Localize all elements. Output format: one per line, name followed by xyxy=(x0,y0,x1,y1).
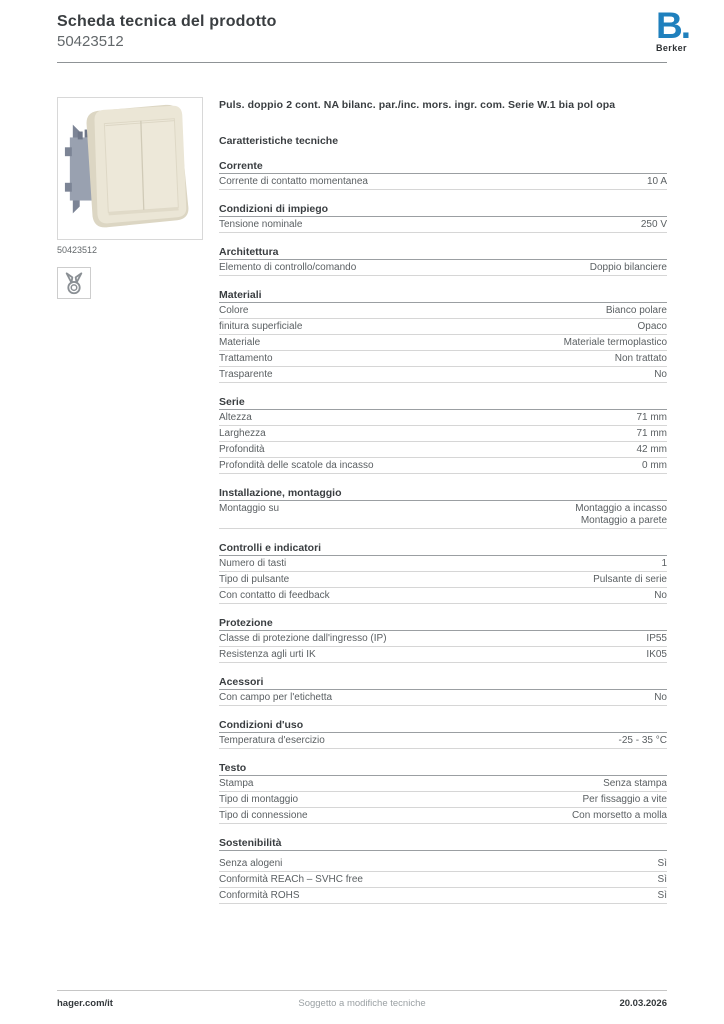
spec-label: Resistenza agli urti IK xyxy=(219,649,316,661)
spec-label: Temperatura d'esercizio xyxy=(219,735,325,747)
spec-value: Non trattato xyxy=(603,353,667,365)
spec-row: Materiale Materiale termoplastico xyxy=(219,335,667,351)
spec-label: Tipo di montaggio xyxy=(219,794,298,806)
spec-row: Tipo di pulsante Pulsante di serie xyxy=(219,572,667,588)
spec-label: Montaggio su xyxy=(219,503,279,515)
header-titles: Scheda tecnica del prodotto 50423512 xyxy=(57,13,277,50)
spec-row: Stampa Senza stampa xyxy=(219,776,667,792)
spec-row: Profondità delle scatole da incasso 0 mm xyxy=(219,458,667,474)
spec-label: Corrente di contatto momentanea xyxy=(219,176,368,188)
spec-value: 10 A xyxy=(635,176,667,188)
spec-value: Bianco polare xyxy=(594,305,667,317)
spec-value: 71 mm xyxy=(624,412,667,424)
tech-characteristics-heading: Caratteristiche tecniche xyxy=(219,135,667,147)
section-title: Testo xyxy=(219,760,667,776)
spec-value: Senza stampa xyxy=(591,778,667,790)
spec-row: Con campo per l'etichetta No xyxy=(219,690,667,706)
spec-row: Numero di tasti 1 xyxy=(219,556,667,572)
footer: hager.com/it Soggetto a modifiche tecnic… xyxy=(57,998,667,1009)
spec-value: 42 mm xyxy=(624,444,667,456)
spec-row: Larghezza 71 mm xyxy=(219,426,667,442)
section-title: Protezione xyxy=(219,615,667,631)
spec-section-architettura: Architettura Elemento di controllo/coman… xyxy=(219,244,667,276)
page-title: Scheda tecnica del prodotto xyxy=(57,13,277,31)
rocker-switch-illustration xyxy=(58,98,202,239)
spec-row: Tipo di connessione Con morsetto a molla xyxy=(219,808,667,824)
product-image-caption: 50423512 xyxy=(57,245,203,255)
spec-label: Con campo per l'etichetta xyxy=(219,692,332,704)
feature-icon-box xyxy=(57,267,91,299)
spec-value: No xyxy=(642,590,667,602)
section-title: Controlli e indicatori xyxy=(219,540,667,556)
spec-value: 1 xyxy=(649,558,667,570)
berker-logo: B. Berker xyxy=(656,10,689,53)
section-title: Corrente xyxy=(219,158,667,174)
spec-row: Colore Bianco polare xyxy=(219,303,667,319)
footer-site: hager.com/it xyxy=(57,998,113,1009)
spec-section-protezione: Protezione Classe di protezione dall'ing… xyxy=(219,615,667,663)
spec-row: Temperatura d'esercizio -25 - 35 °C xyxy=(219,733,667,749)
spec-section-installazione: Installazione, montaggio Montaggio su Mo… xyxy=(219,485,667,529)
spec-label: Conformità ROHS xyxy=(219,890,300,902)
spec-row: finitura superficiale Opaco xyxy=(219,319,667,335)
spec-value: Sì xyxy=(646,874,667,886)
spec-row: Profondità 42 mm xyxy=(219,442,667,458)
spec-row: Trattamento Non trattato xyxy=(219,351,667,367)
spec-label: Senza alogeni xyxy=(219,858,282,870)
spec-value: No xyxy=(642,369,667,381)
spec-label: Stampa xyxy=(219,778,253,790)
spec-section-acessori: Acessori Con campo per l'etichetta No xyxy=(219,674,667,706)
spec-row: Tensione nominale 250 V xyxy=(219,217,667,233)
spec-label: Tensione nominale xyxy=(219,219,302,231)
logo-letter-icon: B. xyxy=(656,10,689,42)
spec-label: Numero di tasti xyxy=(219,558,286,570)
section-title: Materiali xyxy=(219,287,667,303)
spec-value: Materiale termoplastico xyxy=(552,337,667,349)
spec-value: Per fissaggio a vite xyxy=(571,794,668,806)
spec-section-condizioni-uso: Condizioni d'uso Temperatura d'esercizio… xyxy=(219,717,667,749)
spec-row: Conformità REACh – SVHC free Sì xyxy=(219,872,667,888)
spec-label: Trasparente xyxy=(219,369,273,381)
spec-section-sostenibilita: Sostenibilità Senza alogeni Sì Conformit… xyxy=(219,835,667,904)
spec-label: Tipo di pulsante xyxy=(219,574,289,586)
spec-row: Con contatto di feedback No xyxy=(219,588,667,604)
spec-value: Sì xyxy=(646,858,667,870)
product-media-column: 50423512 xyxy=(57,97,203,904)
section-title: Architettura xyxy=(219,244,667,260)
spec-value: Sì xyxy=(646,890,667,902)
spec-label: Profondità xyxy=(219,444,265,456)
spec-row: Classe di protezione dall'ingresso (IP) … xyxy=(219,631,667,647)
footer-rule xyxy=(57,990,667,991)
product-description: Puls. doppio 2 cont. NA bilanc. par./inc… xyxy=(219,99,667,111)
spec-row: Corrente di contatto momentanea 10 A xyxy=(219,174,667,190)
spec-value: Pulsante di serie xyxy=(581,574,667,586)
spec-label: Trattamento xyxy=(219,353,273,365)
spec-label: finitura superficiale xyxy=(219,321,302,333)
spec-row: Trasparente No xyxy=(219,367,667,383)
spec-label: Elemento di controllo/comando xyxy=(219,262,356,274)
spec-row: Senza alogeni Sì xyxy=(219,856,667,872)
header-rule xyxy=(57,62,667,63)
spec-value: Opaco xyxy=(626,321,667,333)
spec-section-condizioni-impiego: Condizioni di impiego Tensione nominale … xyxy=(219,201,667,233)
spec-value: Montaggio a incasso Montaggio a parete xyxy=(563,503,667,527)
spec-value: 71 mm xyxy=(624,428,667,440)
spec-label: Materiale xyxy=(219,337,260,349)
claw-fixing-icon xyxy=(63,271,85,295)
spec-label: Profondità delle scatole da incasso xyxy=(219,460,374,472)
spec-label: Colore xyxy=(219,305,248,317)
spec-value: IK05 xyxy=(634,649,667,661)
footer-date: 20.03.2026 xyxy=(619,998,667,1009)
spec-row: Altezza 71 mm xyxy=(219,410,667,426)
spec-value: IP55 xyxy=(634,633,667,645)
spec-column: Puls. doppio 2 cont. NA bilanc. par./inc… xyxy=(219,97,667,904)
spec-value: 250 V xyxy=(629,219,667,231)
logo-brand-name: Berker xyxy=(656,43,689,53)
section-title: Acessori xyxy=(219,674,667,690)
datasheet-page: Scheda tecnica del prodotto 50423512 B. … xyxy=(0,0,724,1024)
spec-label: Tipo di connessione xyxy=(219,810,308,822)
spec-section-controlli: Controlli e indicatori Numero di tasti 1… xyxy=(219,540,667,604)
spec-label: Con contatto di feedback xyxy=(219,590,330,602)
spec-row: Montaggio su Montaggio a incasso Montagg… xyxy=(219,501,667,529)
product-image-box xyxy=(57,97,203,240)
section-title: Sostenibilità xyxy=(219,835,667,851)
spec-row: Tipo di montaggio Per fissaggio a vite xyxy=(219,792,667,808)
section-title: Condizioni di impiego xyxy=(219,201,667,217)
section-title: Installazione, montaggio xyxy=(219,485,667,501)
spec-value: Doppio bilanciere xyxy=(578,262,667,274)
spec-label: Larghezza xyxy=(219,428,266,440)
spec-value: No xyxy=(642,692,667,704)
spec-value: Con morsetto a molla xyxy=(560,810,667,822)
spec-value: 0 mm xyxy=(630,460,667,472)
header: Scheda tecnica del prodotto 50423512 B. … xyxy=(57,13,689,53)
main-content: 50423512 Puls. doppio 2 cont. NA bilanc.… xyxy=(57,97,667,904)
section-title: Serie xyxy=(219,394,667,410)
footer-note: Soggetto a modifiche tecniche xyxy=(298,998,425,1009)
spec-section-testo: Testo Stampa Senza stampa Tipo di montag… xyxy=(219,760,667,824)
spec-section-materiali: Materiali Colore Bianco polare finitura … xyxy=(219,287,667,383)
spec-section-corrente: Corrente Corrente di contatto momentanea… xyxy=(219,158,667,190)
spec-row: Conformità ROHS Sì xyxy=(219,888,667,904)
section-title: Condizioni d'uso xyxy=(219,717,667,733)
spec-label: Classe di protezione dall'ingresso (IP) xyxy=(219,633,387,645)
spec-row: Resistenza agli urti IK IK05 xyxy=(219,647,667,663)
product-number: 50423512 xyxy=(57,33,277,50)
spec-label: Altezza xyxy=(219,412,252,424)
spec-row: Elemento di controllo/comando Doppio bil… xyxy=(219,260,667,276)
spec-section-serie: Serie Altezza 71 mm Larghezza 71 mm Prof… xyxy=(219,394,667,474)
spec-value: -25 - 35 °C xyxy=(607,735,667,747)
spec-label: Conformità REACh – SVHC free xyxy=(219,874,363,886)
